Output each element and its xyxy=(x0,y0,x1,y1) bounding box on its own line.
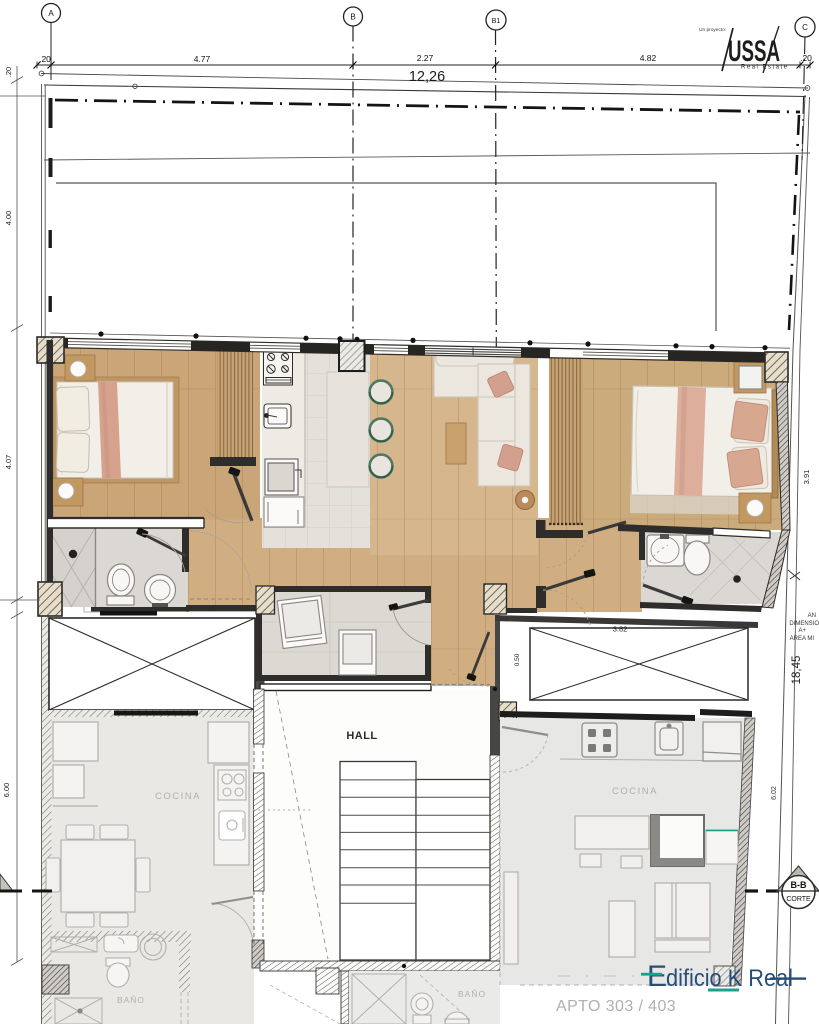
svg-text:COCINA: COCINA xyxy=(155,791,201,802)
svg-text:B-B: B-B xyxy=(791,880,807,890)
svg-text:BAÑO: BAÑO xyxy=(458,989,486,999)
svg-text:USSA: USSA xyxy=(728,35,780,68)
svg-text:4.00: 4.00 xyxy=(4,211,13,226)
svg-text:CORTE: CORTE xyxy=(786,896,811,903)
svg-text:Real Estate: Real Estate xyxy=(741,65,789,71)
svg-text:Un proyecto:: Un proyecto: xyxy=(699,27,726,33)
svg-text:AN: AN xyxy=(808,613,816,619)
svg-text:3.82: 3.82 xyxy=(613,625,628,634)
svg-text:C: C xyxy=(802,23,808,32)
svg-text:.20: .20 xyxy=(800,53,812,63)
svg-text:HALL: HALL xyxy=(346,730,377,742)
svg-text:18,45: 18,45 xyxy=(791,656,803,685)
svg-text:6.02: 6.02 xyxy=(771,786,778,800)
svg-text:12,26: 12,26 xyxy=(409,69,445,85)
svg-text:4.82: 4.82 xyxy=(640,53,657,63)
svg-text:BAÑO: BAÑO xyxy=(117,995,145,1005)
svg-text:6.00: 6.00 xyxy=(2,783,11,798)
svg-text:B: B xyxy=(350,12,355,21)
svg-text:.20: .20 xyxy=(4,67,13,77)
svg-text:0.50: 0.50 xyxy=(514,653,521,666)
svg-text:DIMENSIO: DIMENSIO xyxy=(789,621,819,627)
svg-text:2.27: 2.27 xyxy=(417,53,434,63)
svg-text:4.77: 4.77 xyxy=(194,54,211,64)
svg-text:COCINA: COCINA xyxy=(612,786,658,797)
svg-text:B1: B1 xyxy=(492,18,501,25)
svg-text:4.07: 4.07 xyxy=(4,455,13,470)
svg-text:A+: A+ xyxy=(798,628,806,634)
svg-text:3.91: 3.91 xyxy=(802,470,811,485)
svg-text:A: A xyxy=(48,9,54,18)
svg-text:APTO 303 / 403: APTO 303 / 403 xyxy=(556,998,676,1015)
svg-text:E: E xyxy=(647,960,667,993)
svg-text:.20: .20 xyxy=(39,54,51,64)
svg-text:AREA MI: AREA MI xyxy=(790,636,815,642)
